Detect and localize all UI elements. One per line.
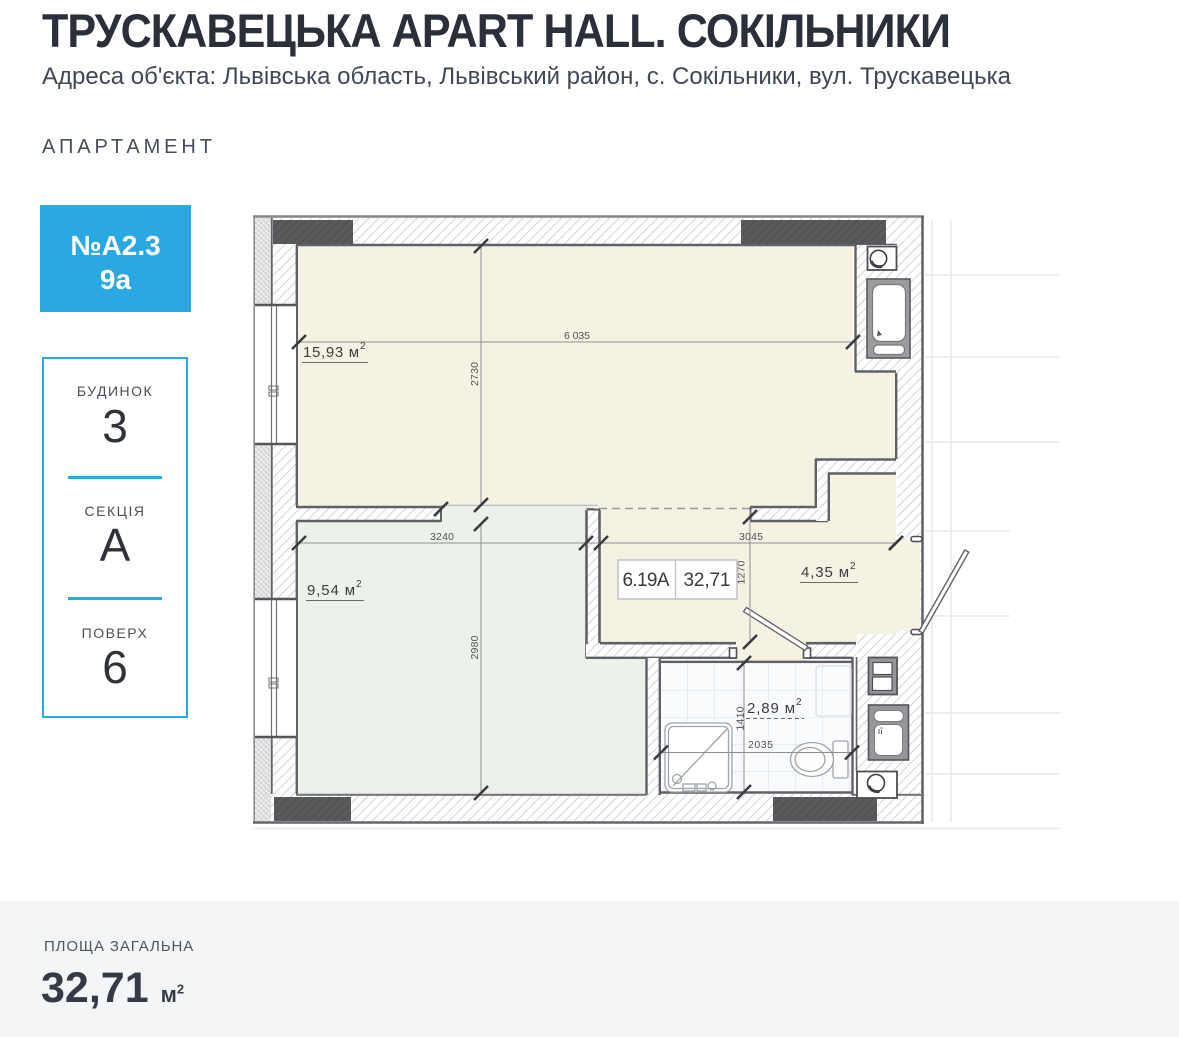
svg-text:2035: 2035: [748, 739, 773, 751]
svg-text:9,54 м: 9,54 м: [307, 582, 355, 599]
svg-text:2,89 м: 2,89 м: [747, 700, 795, 717]
svg-text:2980: 2980: [469, 635, 481, 659]
svg-text:2: 2: [356, 579, 362, 590]
svg-text:4,35 м: 4,35 м: [801, 564, 849, 581]
svg-text:32,71: 32,71: [684, 570, 731, 591]
svg-text:2: 2: [360, 341, 366, 352]
svg-text:2730: 2730: [469, 362, 481, 386]
svg-text:6.19А: 6.19А: [623, 570, 670, 591]
svg-text:6 035: 6 035: [564, 330, 590, 342]
svg-text:15,93 м: 15,93 м: [303, 344, 359, 361]
svg-text:3045: 3045: [739, 531, 763, 543]
svg-text:1410: 1410: [735, 706, 747, 730]
svg-text:3240: 3240: [430, 531, 454, 543]
svg-text:2: 2: [850, 561, 856, 572]
svg-text:2: 2: [796, 697, 802, 708]
